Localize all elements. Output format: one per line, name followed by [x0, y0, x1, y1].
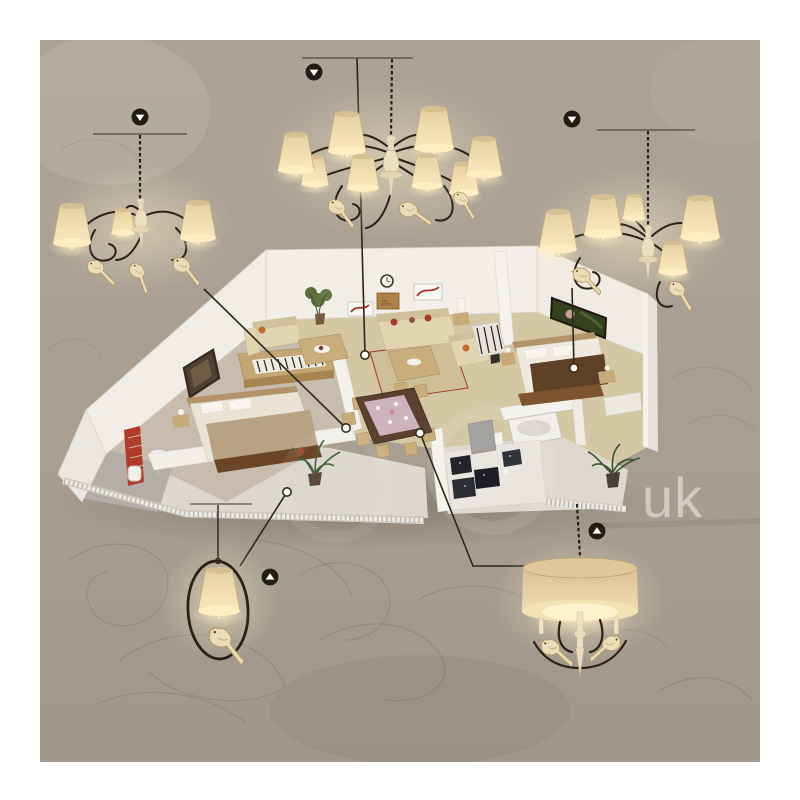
triangle-down-icon — [563, 110, 581, 128]
side-table — [452, 312, 470, 326]
wall-art-brown — [377, 293, 399, 309]
triangle-up-icon — [261, 568, 279, 586]
triangle-up-icon — [588, 522, 606, 540]
placement-dot-balcony — [283, 488, 291, 496]
fridge — [468, 420, 496, 454]
wall-art-red-left — [348, 302, 373, 316]
placement-dot-kitchen — [416, 429, 424, 437]
placement-dot-dining — [342, 424, 350, 432]
placement-dot-living — [361, 351, 369, 359]
triangle-down-icon — [131, 108, 149, 126]
nightstand-left — [500, 352, 516, 366]
toilet — [128, 466, 141, 481]
watermark-text: uk — [642, 466, 703, 529]
nightstand — [172, 414, 190, 428]
triangle-down-icon — [305, 63, 323, 81]
product-image: uk — [0, 0, 800, 800]
scene-svg: uk — [0, 0, 800, 800]
right-wall-inner — [643, 292, 648, 448]
placement-dot-bedroom — [570, 364, 578, 372]
wall-art-red-right — [414, 284, 442, 300]
wall-clock — [381, 275, 393, 287]
right-wall-outer — [648, 294, 658, 452]
nightstand-right — [598, 370, 616, 384]
